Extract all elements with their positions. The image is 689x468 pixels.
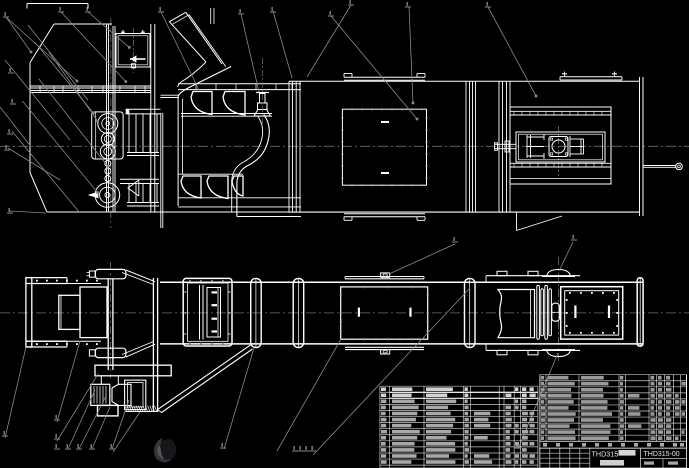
svg-text:THD315-00: THD315-00 xyxy=(644,451,680,458)
svg-text:THD315: THD315 xyxy=(592,450,619,459)
